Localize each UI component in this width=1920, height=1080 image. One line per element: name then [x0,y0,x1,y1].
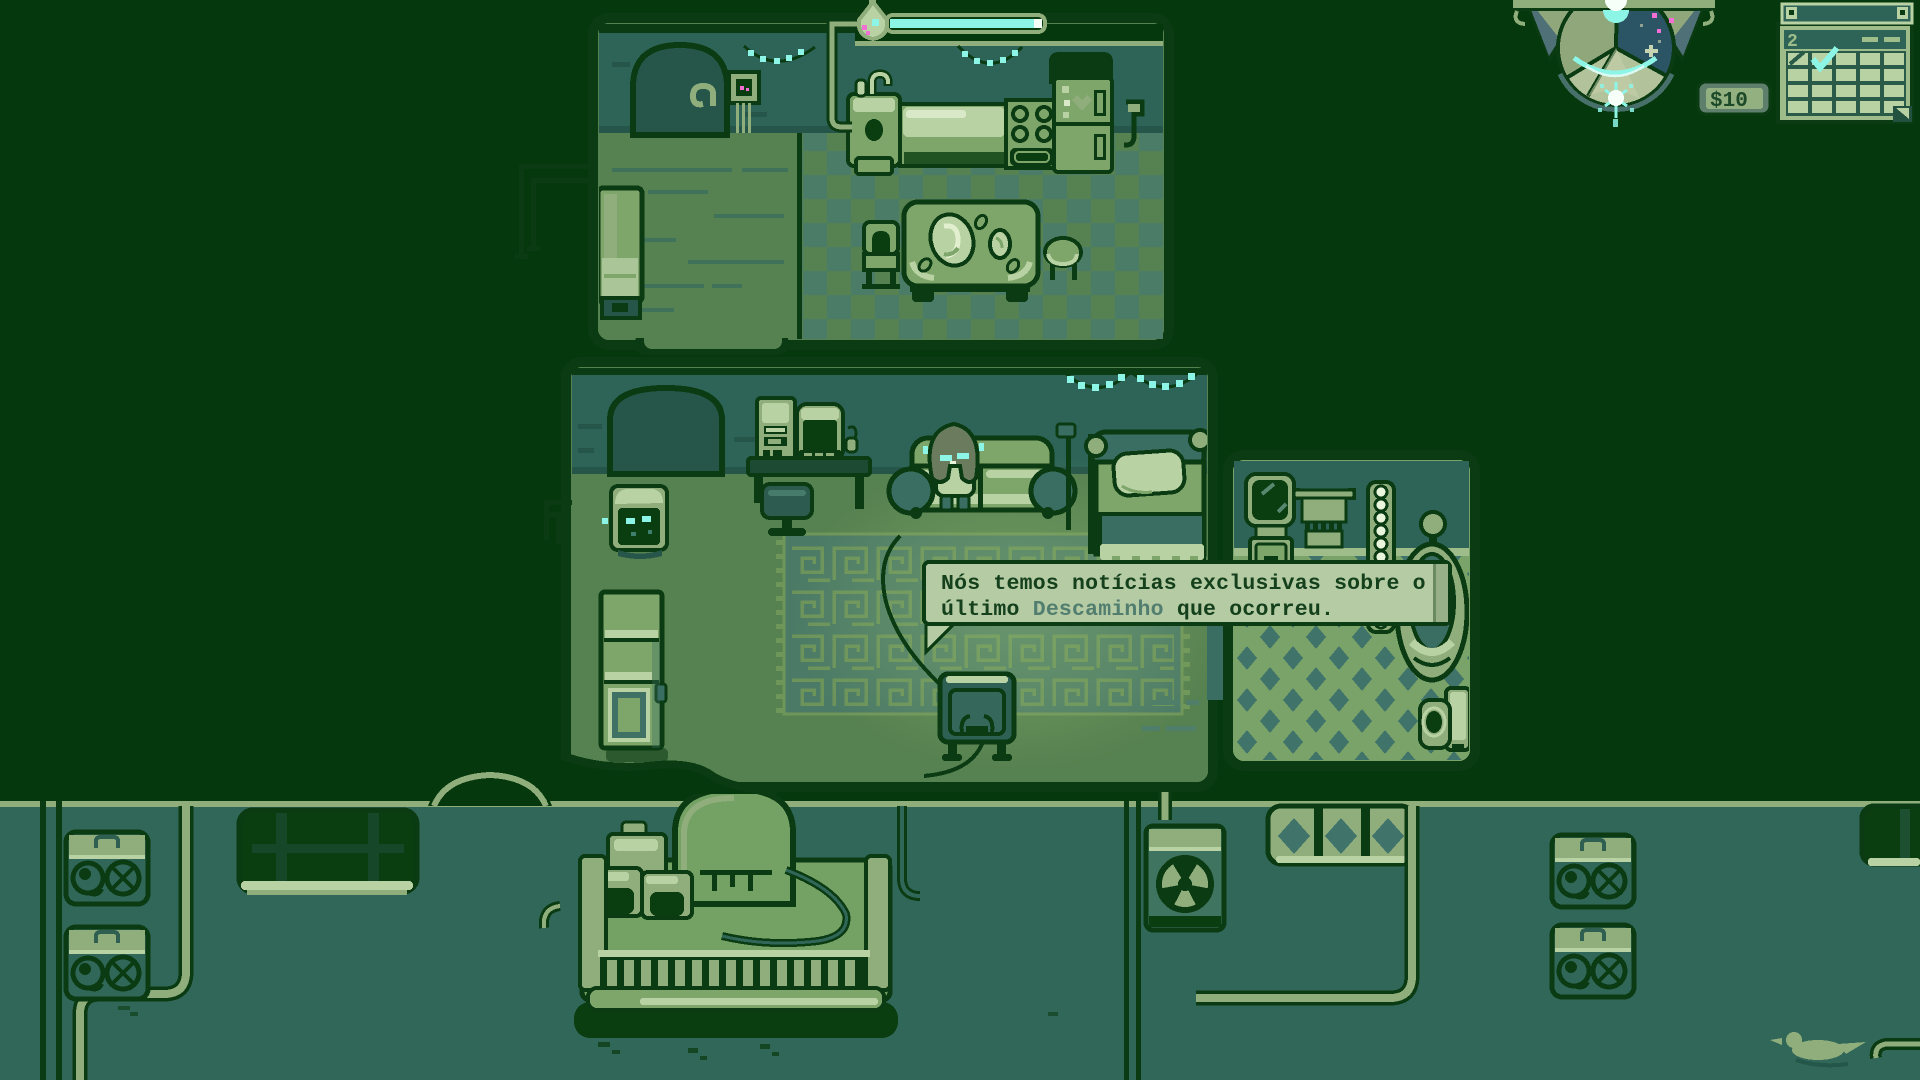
svg-text:último Descaminho que ocorreu.: último Descaminho que ocorreu. [941,598,1334,622]
svg-text:2: 2 [1787,32,1798,52]
svg-text:Nós temos notícias exclusivas: Nós temos notícias exclusivas sobre o [941,572,1426,596]
svg-text:$10: $10 [1710,90,1748,113]
